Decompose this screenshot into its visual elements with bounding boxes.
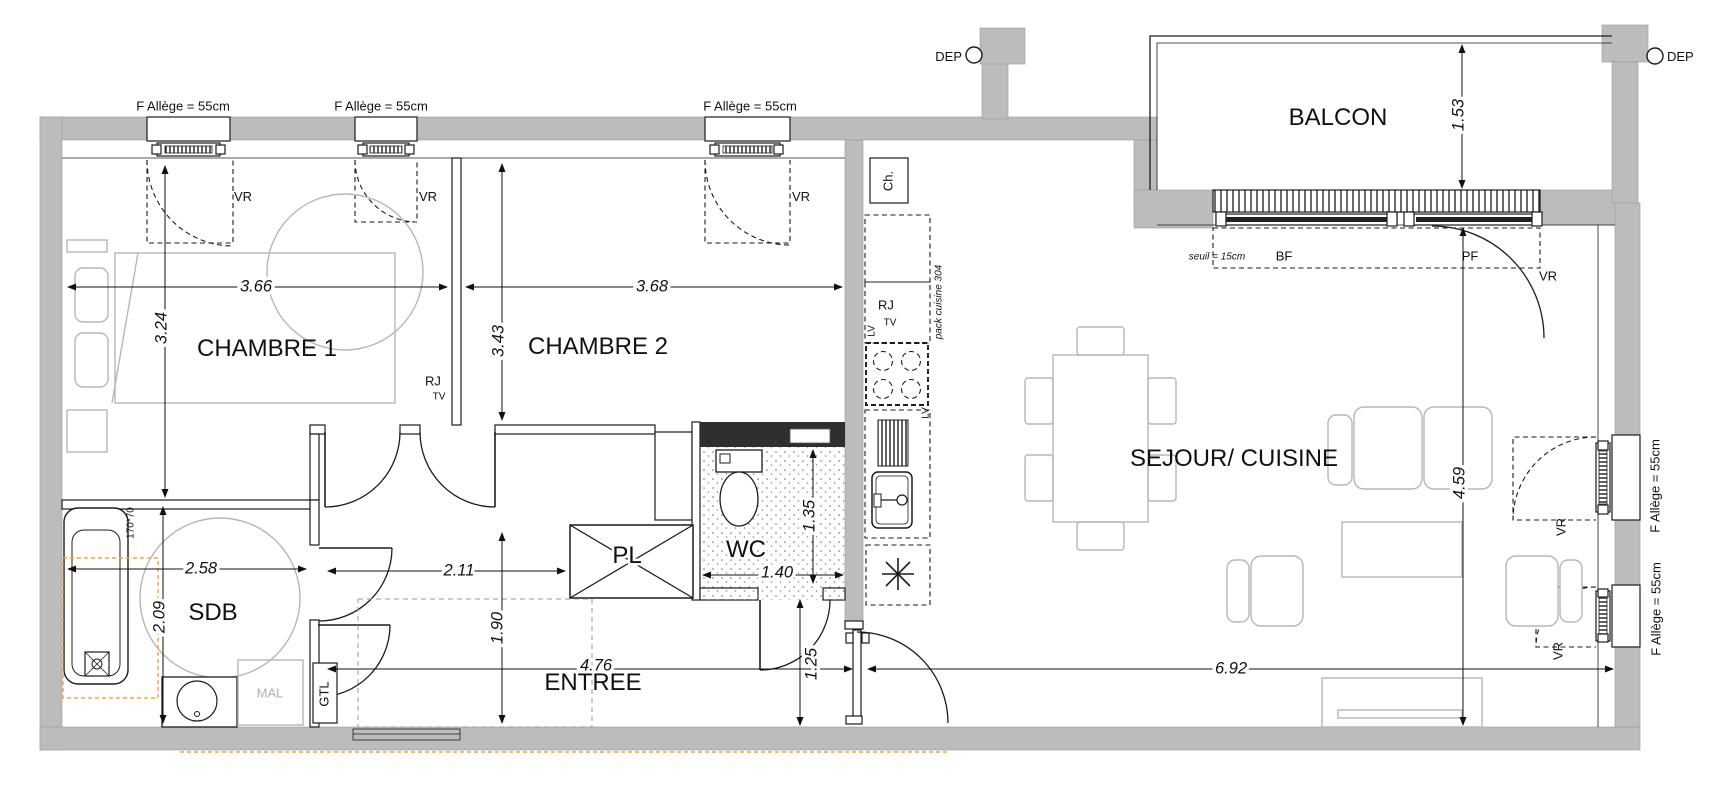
vanity [162,677,237,727]
room-label-sdb: SDB [188,599,237,626]
window-2-vr-box [355,160,417,222]
window-1-swing [147,160,233,246]
wall-balcony-band-right [1540,190,1617,225]
vr-label-w1: VR [234,189,252,204]
kitchen [865,158,930,605]
window-3-glass [723,146,772,153]
door-c1-swing [325,432,400,507]
window-r1-label: F Allège = 55cm [1647,439,1662,533]
wall-left [40,117,62,750]
window-right-1 [1513,435,1640,520]
window-1-vr-box [147,160,233,243]
room-label-pl: PL [612,542,641,569]
faucet-head [897,495,907,505]
room-label-sejour: SEJOUR/ CUISINE [1130,445,1338,472]
bf-label: BF [1276,248,1293,263]
floor-plan-svg: F Allège = 55cm F Allège = 55cm F Allège… [0,0,1715,800]
window-r1-swing [1513,437,1596,520]
dim-sdb-width: 2.58 [184,559,218,577]
dim-sejour-length: 6.92 [1215,659,1247,677]
chair-left-1 [1025,378,1053,424]
wall-hall-connector [310,434,319,500]
tv-label-kitchen: TV [884,318,897,329]
chambre1-furniture [67,194,423,452]
dep-label-mid: DEP [935,49,962,64]
wall-kitchen-spine [845,140,863,623]
dim-c1-width: 3.66 [240,277,273,295]
door-entry-swing [857,632,948,723]
column-c2-corner [655,432,692,520]
window-r1-glass [1599,451,1607,504]
dep-vent-icon-right [1647,48,1663,64]
window-r2-box [1612,585,1640,647]
partition-south-stub [310,425,325,434]
rj-label-kitchen: RJ [878,297,894,312]
pf-glass [1416,217,1534,222]
chair-top [1077,327,1124,355]
pillow-2 [75,333,108,387]
window-2-jamb-l [358,145,367,154]
vr-label-w2: VR [419,189,437,204]
chair-bottom [1077,522,1124,550]
bf-glass [1222,217,1391,222]
window-r1-jamb-t [1598,441,1608,450]
window-1-jamb-r [216,145,225,154]
window-r2-jamb-b [1598,634,1608,642]
window-1-box [147,117,230,141]
door-sdb-swing [319,548,392,621]
chair-left-2 [1025,455,1053,501]
entree-zone-box [358,599,592,727]
window-r2-label: F Allège = 55cm [1648,562,1663,656]
sejour-furniture [1025,327,1582,727]
boiler-label: Ch. [880,171,895,191]
fridge-star-icon [882,558,914,590]
armchair-right [1506,556,1582,626]
dep-vent-icon-mid [966,47,982,63]
vr-label-r1: VR [1553,518,1568,536]
duct-head-mid [980,28,1025,64]
wall-balcony-band-left [1134,190,1213,228]
fridge-slot [866,545,930,605]
dim-c1-height: 3.24 [152,312,170,344]
bf-jamb-left [1216,212,1226,226]
window-2-swing [355,160,417,222]
bathtub-drain [85,652,109,676]
duct-column-mid [982,62,1008,119]
window-r1-jamb-b [1598,505,1608,514]
wall-top-seg2 [230,117,355,140]
toilet-button [720,454,730,463]
door-entry-hinge-a [846,633,853,643]
kitchen-unit-1 [865,215,930,282]
dimension-lines [68,45,1613,725]
partition-c1-c2 [452,158,461,425]
dim-sdb-height: 2.09 [150,601,168,634]
partition-south-mid [400,425,420,434]
dim-sejour-width: 4.59 [1450,467,1468,499]
vr-label-w3: VR [792,189,810,204]
window-3 [705,117,790,245]
room-label-chambre2: CHAMBRE 2 [528,333,668,360]
seuil-label: seuil = 15cm [1189,252,1245,263]
window-2-box [355,117,417,141]
window-r1-vr-box [1513,437,1596,520]
wall-right-seg3 [1615,647,1640,727]
pillow-1 [75,268,108,322]
duct-head-right [1602,25,1648,62]
pack-cuisine-label: pack cuisine 304 [934,264,945,340]
door-entry-head-jamb [845,621,863,629]
window-r1-box [1612,435,1640,520]
window-1-glass [165,146,212,153]
pf-jamb-left [1404,212,1414,226]
window-3-jamb-l [710,145,719,154]
dim-passage: 1.25 [802,647,820,680]
mal-label: MAL [257,685,284,700]
window-3-label: F Allège = 55cm [703,98,797,113]
nightstand-top [67,240,107,252]
wall-bottom [40,727,1640,750]
window-2-glass [370,146,402,153]
balcony [966,36,1663,338]
vr-label-r2: VR [1550,642,1565,660]
faucet-base [874,494,881,507]
turning-circle-sdb [140,518,300,678]
window-2-jamb-r [405,145,414,154]
tv-console [1322,678,1482,727]
floor-plan-page: F Allège = 55cm F Allège = 55cm F Allège… [0,0,1715,800]
door-entry-hinge-b [862,633,869,643]
dim-c2-width: 3.68 [636,277,669,295]
wall-right-seg1 [1615,203,1640,435]
nightstand-bottom [67,410,107,452]
window-1-label: F Allège = 55cm [136,98,230,113]
toilet-bowl [720,472,758,526]
dim-balcony-depth: 1.53 [1449,98,1467,131]
drainer [878,420,908,466]
dim-entree-width: 1.90 [488,611,506,644]
cooktop [866,343,928,405]
partition-c2-south [495,425,655,434]
armchair-left [1227,556,1303,626]
tv-label-c1: TV [433,392,446,403]
vr-label-pf: VR [1539,268,1557,283]
pf-label: PF [1462,248,1479,263]
chair-right-1 [1148,378,1176,424]
rj-label-c1: RJ [425,373,441,388]
wc-duct-niche [790,429,830,443]
dim-c2-height: 3.43 [489,324,507,357]
dep-label-right: DEP [1667,49,1694,64]
window-1 [147,117,233,246]
room-label-entree: ENTREE [544,669,641,696]
coffee-table [1342,522,1462,577]
pf-jamb-right [1532,212,1542,226]
window-2-label: F Allège = 55cm [334,98,428,113]
window-r2-glass [1599,598,1607,634]
window-r2-jamb-t [1598,589,1608,597]
window-3-vr-box [705,160,790,243]
room-label-wc: WC [726,536,766,563]
duct-column-right [1612,62,1638,203]
bay-window-hatch [1213,190,1540,212]
dim-hall: 2.11 [443,561,475,579]
bed-throw-line [112,253,138,403]
wall-right-seg2 [1615,520,1640,585]
window-1-jamb-l [152,145,161,154]
exterior-walls [40,25,1648,752]
bf-jamb-right [1387,212,1397,226]
wall-top-seg3 [417,117,705,140]
tv-screen [1338,710,1462,718]
turning-circle-c1 [267,194,423,350]
dim-wc-width: 1.40 [761,563,794,581]
dining-table [1053,355,1148,522]
pf-door-swing [1432,226,1544,338]
door-entry-sill [846,716,862,724]
window-3-box [705,117,790,141]
room-label-chambre1: CHAMBRE 1 [197,335,337,362]
dim-wc-height: 1.35 [800,499,818,532]
window-3-swing [705,160,790,245]
lv-label-2: LV [921,407,932,419]
window-3-jamb-r [774,145,783,154]
bay-window-frames [1216,212,1542,226]
lv-label-1: LV [867,325,878,337]
gtl-label: GTL [316,681,331,706]
tub-size-label: 170*70 [126,507,137,539]
room-label-balcon: BALCON [1289,104,1388,131]
wall-top-seg4 [790,117,1157,140]
wall-sdb-east-top [310,500,319,545]
sink-unit [865,410,930,538]
door-entry-leaf [853,630,861,723]
door-c2-swing [420,432,495,507]
bay-vr-box [1213,228,1540,268]
